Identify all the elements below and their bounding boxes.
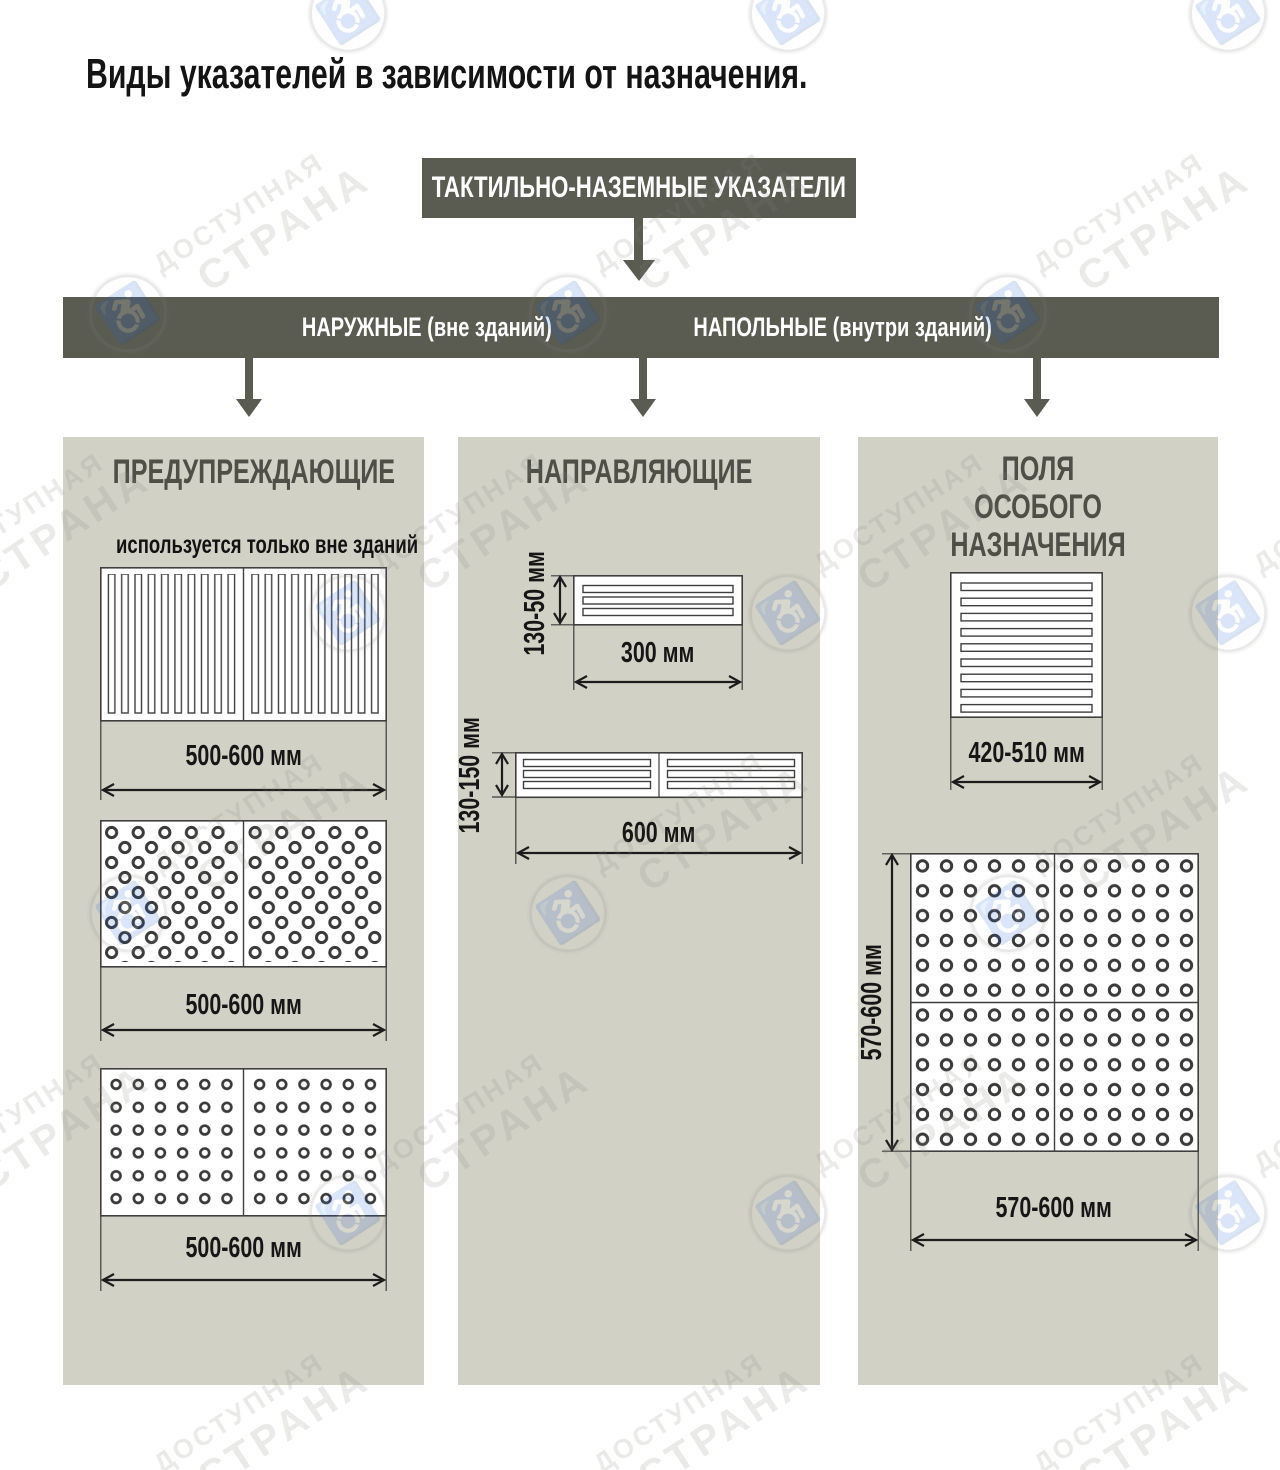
wheelchair-icon: ♿ <box>954 1459 1062 1470</box>
branch-arrow-left-head <box>236 399 262 417</box>
column-warning: ПРЕДУПРЕЖДАЮЩИЕ используется только вне … <box>63 437 424 1385</box>
dim-warning-tile3-width: 500-600 мм <box>100 1233 387 1265</box>
branch-arrow-right-head <box>1024 399 1050 417</box>
branch-arrow-center-head <box>630 399 656 417</box>
dim-guiding-tile1-height: 130-50 мм <box>517 518 553 688</box>
flow-root-arrow-head <box>623 260 655 281</box>
dim-guiding-tile2-height: 130-150 мм <box>452 690 488 860</box>
tile-vertical-bars-diagram <box>100 567 387 812</box>
dim-special-tile1-width: 420-510 мм <box>935 738 1118 770</box>
watermark-text: ДОСТУПНАЯСТРАНА <box>1248 0 1280 18</box>
flow-root-box: ТАКТИЛЬНО-НАЗЕМНЫЕ УКАЗАТЕЛИ <box>422 158 856 218</box>
dim-special-tile2-width: 570-600 мм <box>910 1193 1198 1225</box>
flow-root-arrow <box>634 214 643 261</box>
dim-guiding-tile1-width: 300 мм <box>573 638 743 670</box>
branch-label-indoor: НАПОЛЬНЫЕ (внутри зданий) <box>643 297 1043 358</box>
column-special: ПОЛЯ ОСОБОГО НАЗНАЧЕНИЯ 420-510 мм <box>858 437 1218 1385</box>
watermark-text: ДОСТУПНАЯСТРАНА <box>1248 431 1280 618</box>
dim-warning-tile2-width: 500-600 мм <box>100 990 387 1022</box>
watermark-text: ДОСТУПНАЯСТРАНА <box>368 0 599 18</box>
watermark-text: ДОСТУПНАЯСТРАНА <box>1028 131 1259 318</box>
watermark-text: ДОСТУПНАЯСТРАНА <box>0 0 159 18</box>
dim-warning-tile1-width: 500-600 мм <box>100 741 387 773</box>
dim-guiding-tile2-width: 600 мм <box>515 818 802 850</box>
infographic-page: Виды указателей в зависимости от назначе… <box>0 0 1280 1470</box>
branch-arrow-right <box>1033 358 1041 400</box>
column-guiding: НАПРАВЛЯЮЩИЕ 130-50 мм 300 мм <box>458 437 820 1385</box>
watermark-text: ДОСТУПНАЯСТРАНА <box>148 131 379 318</box>
flow-root-label: ТАКТИЛЬНО-НАЗЕМНЫЕ УКАЗАТЕЛИ <box>359 171 919 205</box>
watermark-text: ДОСТУПНАЯСТРАНА <box>808 0 1039 18</box>
column-warning-header: ПРЕДУПРЕЖДАЮЩИЕ <box>63 453 424 491</box>
wheelchair-icon: ♿ <box>74 1459 182 1470</box>
column-warning-note: используется только вне зданий <box>63 531 424 560</box>
tile-stripes-300-diagram <box>543 575 743 695</box>
wheelchair-icon: ♿ <box>1174 0 1280 67</box>
page-title: Виды указателей в зависимости от назначе… <box>86 50 1088 98</box>
page-title-text: Виды указателей в зависимости от назначе… <box>86 50 807 98</box>
branch-arrow-left <box>245 358 253 400</box>
tile-stripes-600-diagram <box>478 752 808 872</box>
branch-arrow-center <box>639 358 647 400</box>
branch-label-outdoor: НАРУЖНЫЕ (вне зданий) <box>227 297 627 358</box>
watermark-text: ДОСТУПНАЯСТРАНА <box>1248 1031 1280 1218</box>
watermark: ♿ДОСТУПНАЯСТРАНА <box>1174 0 1280 67</box>
dim-special-tile2-height: 570-600 мм <box>854 902 890 1102</box>
column-special-header: ПОЛЯ ОСОБОГО НАЗНАЧЕНИЯ <box>858 450 1218 564</box>
column-guiding-header: НАПРАВЛЯЮЩИЕ <box>458 453 820 491</box>
wheelchair-icon: ♿ <box>514 1459 622 1470</box>
